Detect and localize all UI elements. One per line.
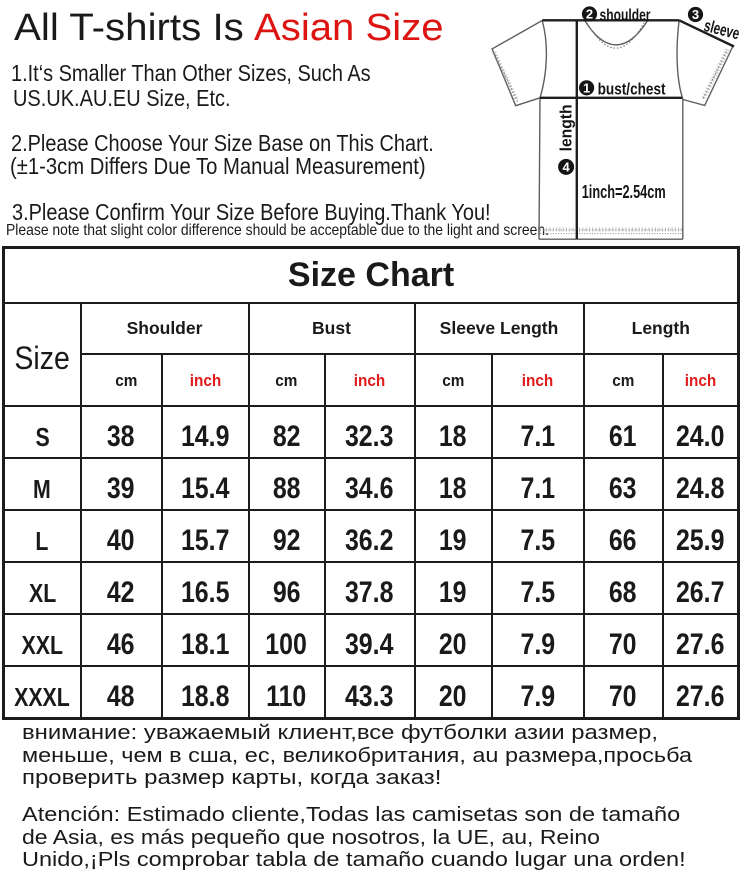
svg-text:bust/chest: bust/chest	[598, 80, 666, 99]
svg-text:3: 3	[692, 7, 699, 22]
svg-text:1inch=2.54cm: 1inch=2.54cm	[582, 182, 666, 202]
svg-text:4: 4	[562, 160, 570, 175]
svg-text:2: 2	[586, 7, 593, 22]
svg-text:sleeve: sleeve	[702, 16, 742, 43]
svg-text:length: length	[557, 104, 576, 151]
svg-text:shoulder: shoulder	[600, 5, 651, 24]
svg-text:1: 1	[583, 80, 590, 95]
